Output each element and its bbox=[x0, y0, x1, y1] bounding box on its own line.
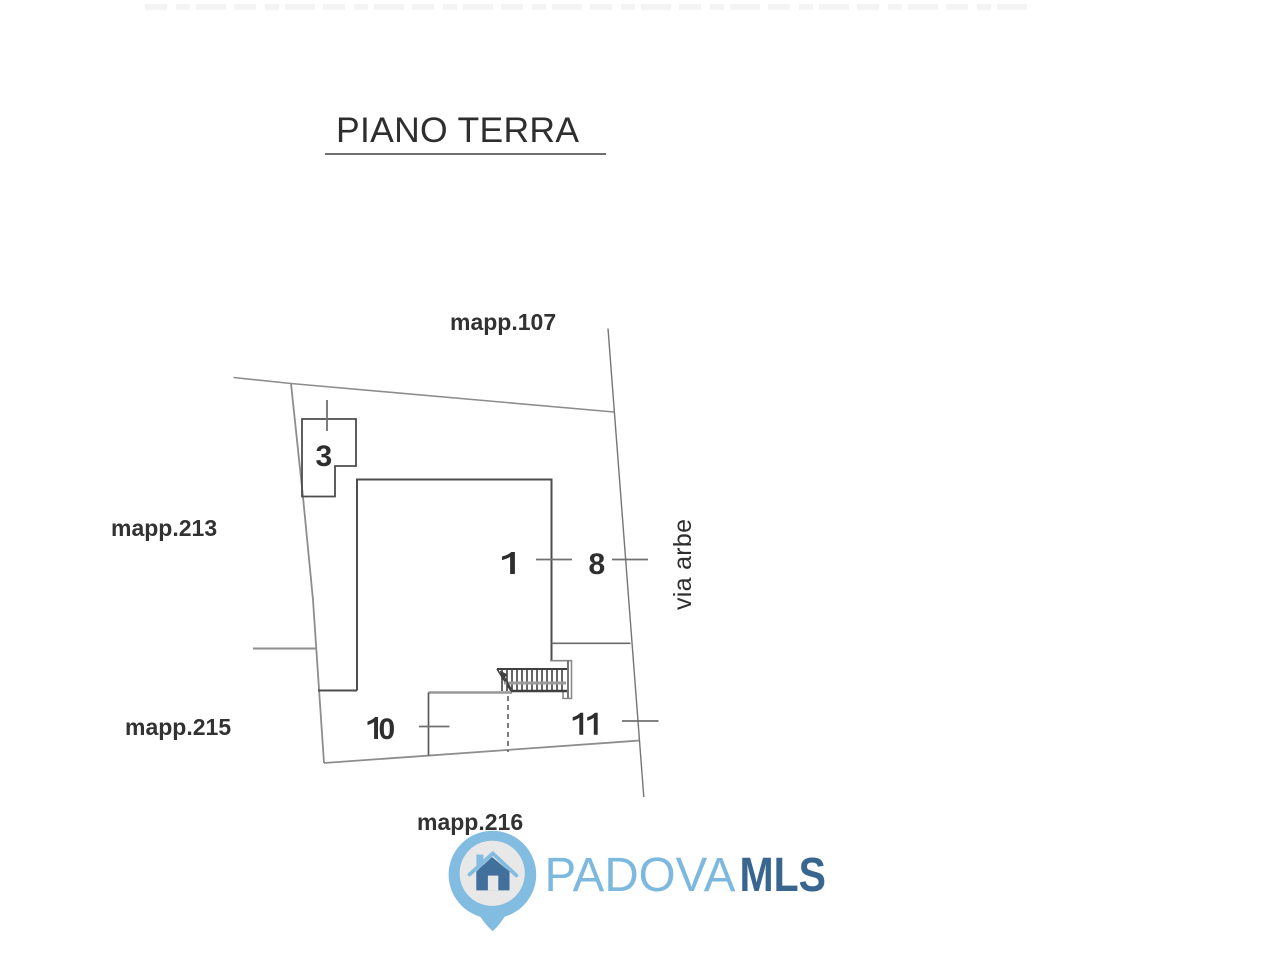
svg-text:PADOVA: PADOVA bbox=[545, 849, 736, 902]
svg-text:mapp.216: mapp.216 bbox=[417, 809, 523, 835]
svg-text:mapp.107: mapp.107 bbox=[450, 309, 556, 335]
svg-text:3: 3 bbox=[316, 440, 333, 473]
svg-text:8: 8 bbox=[589, 548, 606, 581]
svg-text:0: 0 bbox=[379, 713, 396, 746]
svg-text:mapp.213: mapp.213 bbox=[111, 515, 217, 541]
svg-text:MLS: MLS bbox=[740, 849, 827, 902]
svg-text:mapp.215: mapp.215 bbox=[125, 714, 231, 740]
svg-text:via arbe: via arbe bbox=[669, 519, 697, 610]
svg-text:PIANO TERRA: PIANO TERRA bbox=[336, 110, 579, 150]
